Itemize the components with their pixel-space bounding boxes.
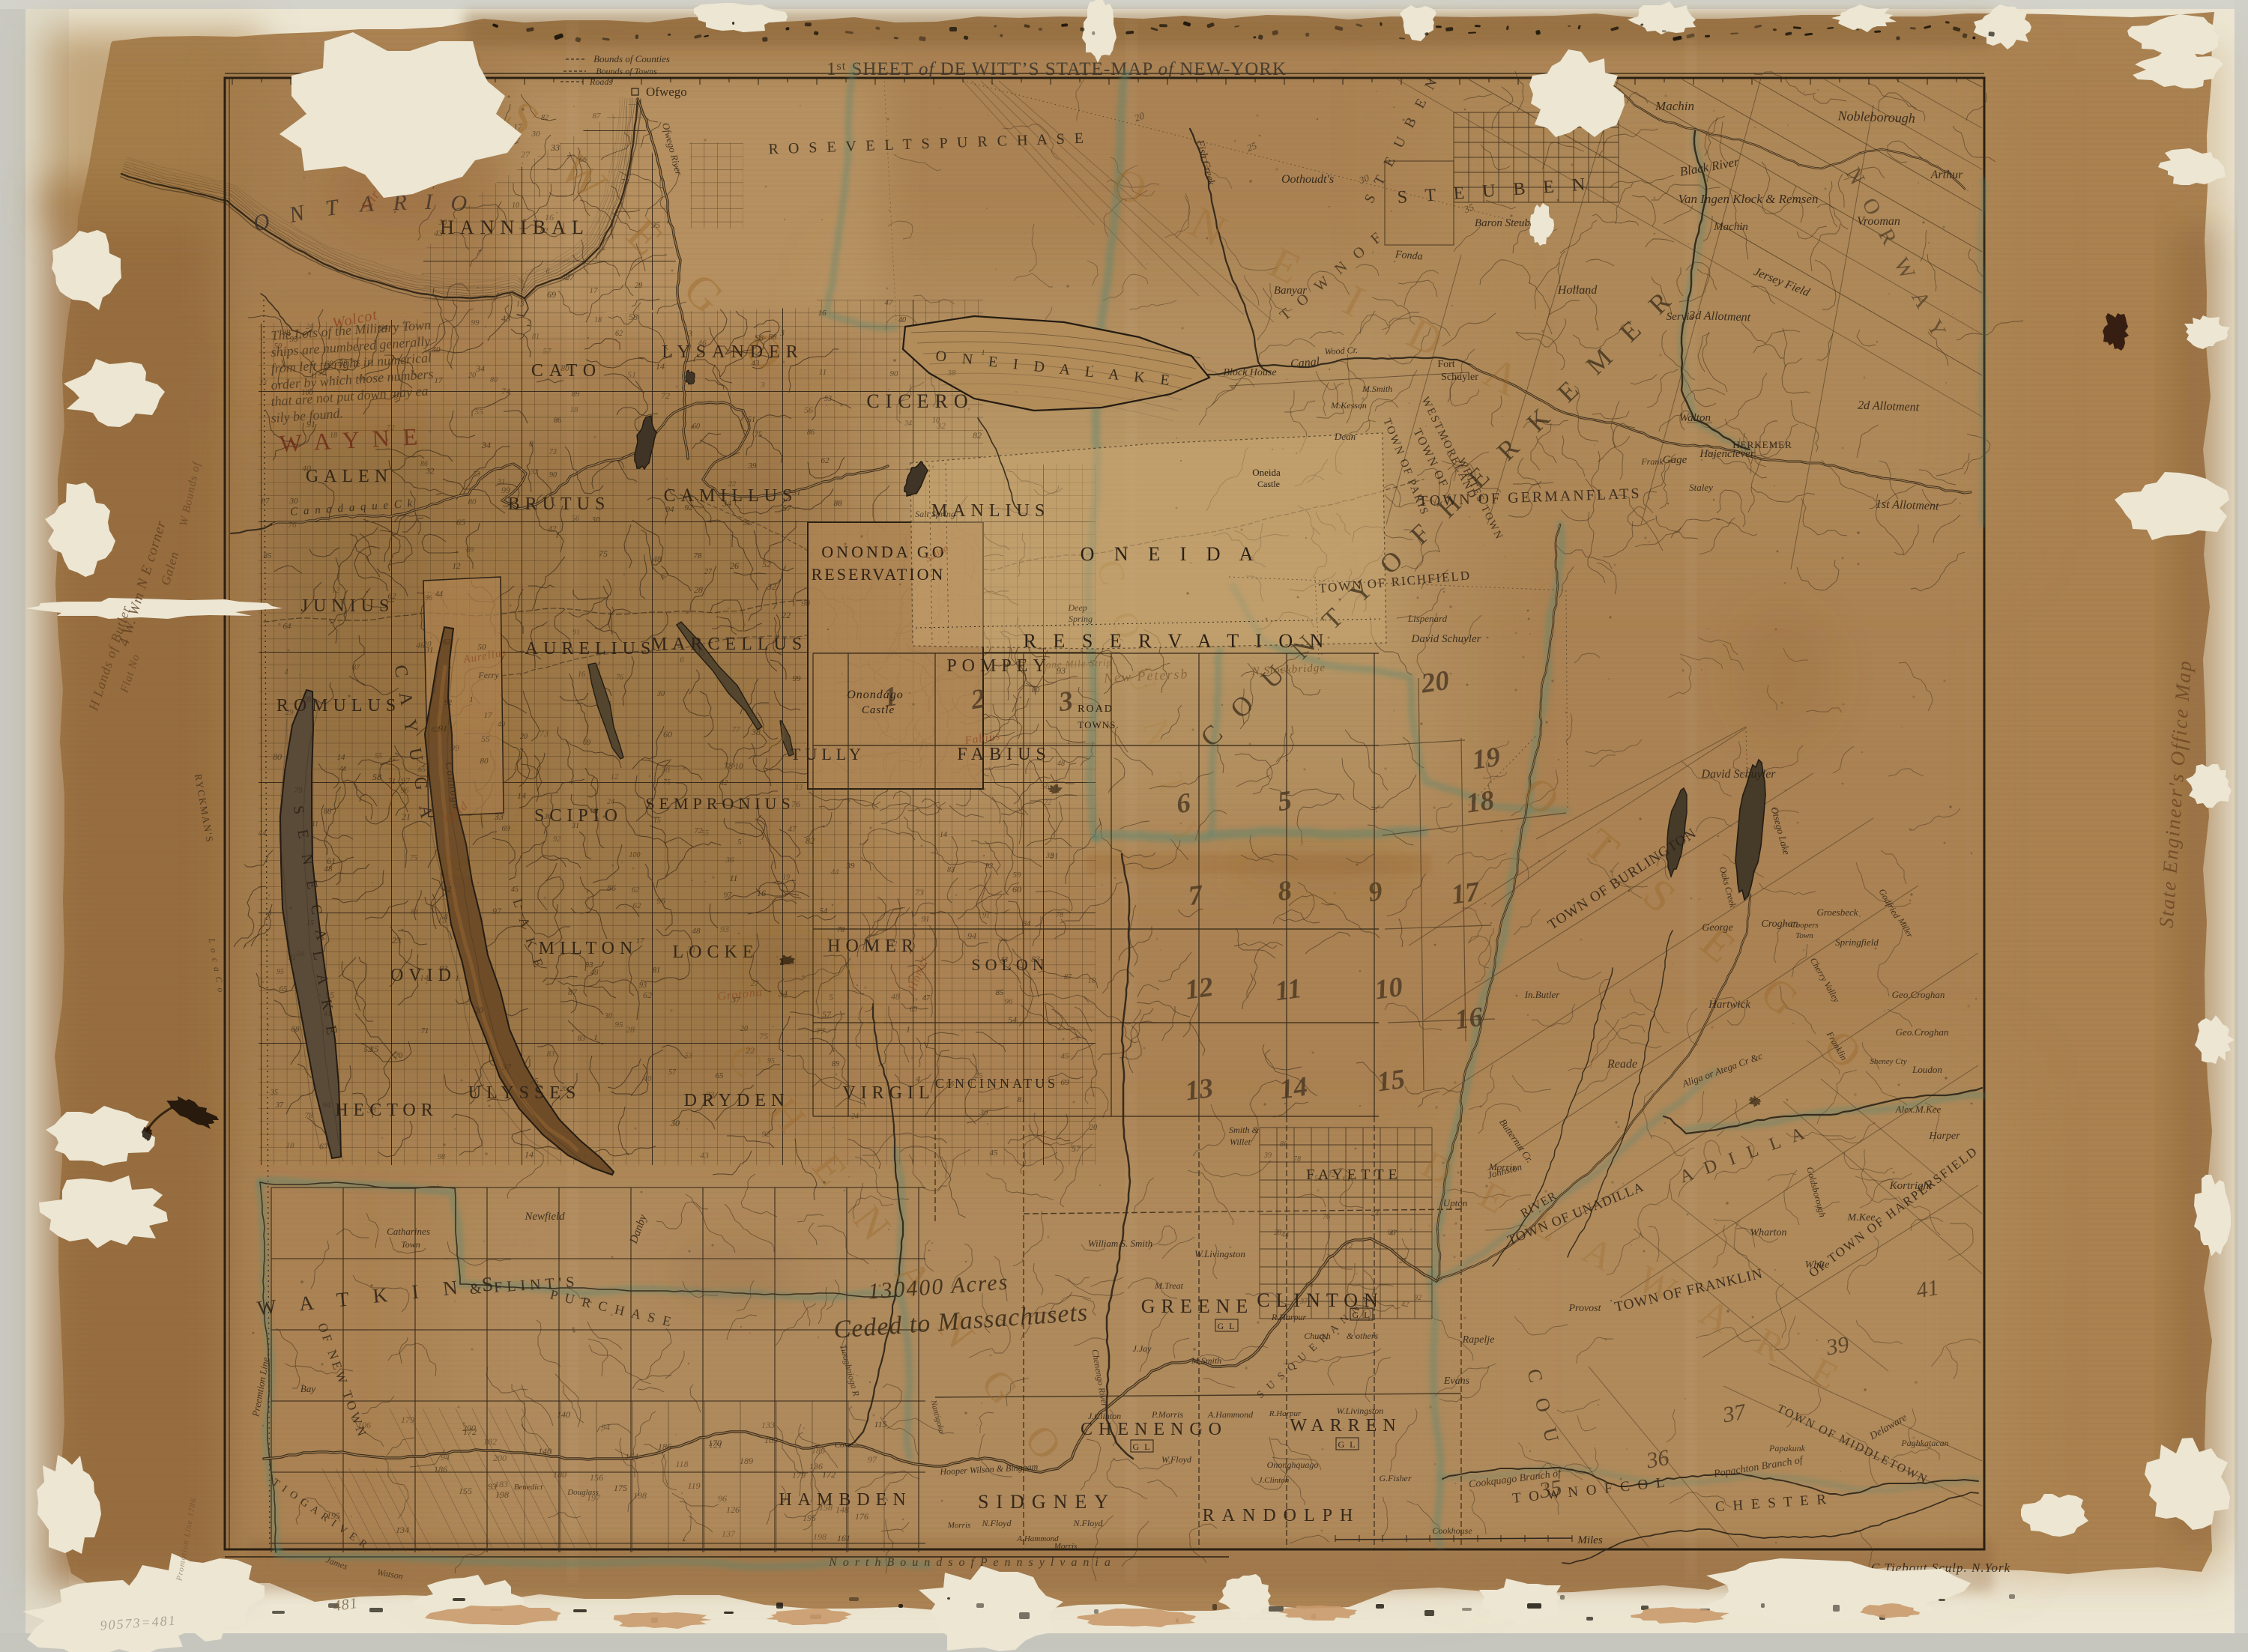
svg-text:N.Floyd: N.Floyd <box>982 1518 1012 1528</box>
svg-text:G L: G L <box>1133 1441 1152 1452</box>
svg-text:25: 25 <box>531 1077 540 1086</box>
svg-text:Servis: Servis <box>1667 311 1694 323</box>
svg-text:97: 97 <box>492 906 502 916</box>
svg-text:182: 182 <box>483 1436 497 1447</box>
svg-text:2d Allotment: 2d Allotment <box>1858 399 1920 414</box>
svg-text:47: 47 <box>885 298 894 307</box>
svg-text:Hartwick: Hartwick <box>1708 999 1750 1011</box>
svg-text:121: 121 <box>709 1440 722 1450</box>
svg-text:44: 44 <box>259 829 268 838</box>
svg-text:Dean: Dean <box>1334 431 1356 442</box>
svg-text:A.Hammond: A.Hammond <box>1207 1409 1254 1420</box>
svg-text:21: 21 <box>288 954 296 962</box>
svg-text:95: 95 <box>651 220 660 230</box>
svg-text:W.Livingston: W.Livingston <box>1337 1406 1384 1416</box>
svg-text:54: 54 <box>1008 1014 1017 1025</box>
svg-text:86: 86 <box>607 883 616 893</box>
svg-text:34: 34 <box>481 440 491 450</box>
svg-text:14: 14 <box>940 831 947 839</box>
svg-text:20: 20 <box>520 733 528 741</box>
svg-text:83: 83 <box>547 1050 555 1059</box>
svg-text:93: 93 <box>707 1090 716 1099</box>
svg-text:Castle: Castle <box>1257 479 1280 489</box>
svg-text:M.Treat: M.Treat <box>1154 1280 1184 1291</box>
svg-text:48: 48 <box>891 991 900 1002</box>
svg-text:189: 189 <box>740 1456 753 1466</box>
svg-text:72: 72 <box>1328 1171 1335 1179</box>
svg-text:45: 45 <box>696 647 705 658</box>
svg-text:23: 23 <box>392 935 401 945</box>
svg-text:30: 30 <box>656 690 665 698</box>
svg-text:William S. Smith: William S. Smith <box>1088 1238 1152 1249</box>
svg-text:16: 16 <box>818 309 827 318</box>
svg-text:35: 35 <box>369 1044 378 1054</box>
svg-text:18: 18 <box>1464 785 1496 820</box>
svg-text:40: 40 <box>898 316 906 324</box>
svg-text:50: 50 <box>274 342 282 351</box>
svg-text:27: 27 <box>521 149 531 160</box>
svg-text:SIDGNEY: SIDGNEY <box>978 1491 1116 1513</box>
svg-text:CICERO: CICERO <box>866 390 973 412</box>
svg-text:88: 88 <box>769 333 778 342</box>
svg-text:97: 97 <box>868 1454 877 1465</box>
svg-text:46: 46 <box>698 339 707 348</box>
svg-text:24: 24 <box>1371 1210 1379 1218</box>
svg-text:55: 55 <box>701 829 709 838</box>
svg-text:115: 115 <box>874 1419 886 1429</box>
svg-text:Newfield: Newfield <box>524 1211 565 1223</box>
svg-text:73: 73 <box>915 887 924 898</box>
svg-text:13: 13 <box>795 784 803 792</box>
svg-text:1: 1 <box>981 348 985 357</box>
svg-text:18: 18 <box>330 432 337 440</box>
svg-text:54: 54 <box>820 907 829 916</box>
svg-text:19: 19 <box>1470 742 1502 776</box>
svg-text:87: 87 <box>568 987 578 997</box>
svg-text:65: 65 <box>716 1071 725 1080</box>
svg-text:20: 20 <box>1090 1124 1097 1132</box>
svg-text:23: 23 <box>259 379 267 387</box>
svg-text:198: 198 <box>633 1490 647 1501</box>
svg-text:20: 20 <box>423 640 432 649</box>
svg-text:95: 95 <box>767 1057 775 1065</box>
svg-text:80: 80 <box>561 364 570 373</box>
svg-text:12: 12 <box>1183 972 1215 1006</box>
svg-text:41: 41 <box>339 765 347 773</box>
svg-text:87: 87 <box>262 497 271 506</box>
svg-text:3: 3 <box>687 328 692 339</box>
svg-text:Rapelje: Rapelje <box>1462 1334 1495 1346</box>
svg-text:30: 30 <box>531 130 541 139</box>
svg-text:83: 83 <box>411 908 418 916</box>
svg-text:G L: G L <box>1338 1439 1357 1450</box>
svg-text:Canal: Canal <box>1290 355 1320 370</box>
svg-text:62: 62 <box>615 330 623 338</box>
svg-text:57: 57 <box>543 347 552 356</box>
svg-text:AURELIUS: AURELIUS <box>525 639 656 659</box>
svg-text:4: 4 <box>916 1074 920 1084</box>
svg-text:82: 82 <box>806 835 815 846</box>
svg-text:Provost: Provost <box>1568 1303 1601 1314</box>
svg-text:97: 97 <box>724 891 733 900</box>
svg-text:126: 126 <box>726 1504 740 1515</box>
svg-text:1st SHEET of DE WITT’S STATE-M: 1st SHEET of DE WITT’S STATE-MAP of NEW-… <box>827 59 1287 79</box>
svg-text:156: 156 <box>590 1472 603 1483</box>
svg-text:140: 140 <box>557 1409 570 1420</box>
svg-text:134: 134 <box>396 1525 409 1535</box>
svg-text:81: 81 <box>532 333 540 341</box>
svg-text:32: 32 <box>1045 852 1054 860</box>
svg-text:61: 61 <box>1343 1175 1350 1183</box>
svg-text:W.Livingston: W.Livingston <box>1194 1248 1245 1259</box>
svg-text:Oothoudt's: Oothoudt's <box>1281 173 1334 186</box>
svg-text:55: 55 <box>325 990 334 1000</box>
svg-text:83: 83 <box>1031 954 1040 964</box>
svg-text:98: 98 <box>339 359 348 368</box>
svg-text:M.Kesson: M.Kesson <box>1330 400 1367 411</box>
svg-text:16: 16 <box>545 212 554 223</box>
svg-text:22: 22 <box>728 480 736 488</box>
svg-text:481: 481 <box>332 1595 359 1615</box>
svg-text:36: 36 <box>543 813 552 821</box>
svg-text:56: 56 <box>297 949 306 958</box>
svg-text:Morris: Morris <box>1488 1161 1516 1173</box>
svg-text:43: 43 <box>752 359 761 368</box>
svg-text:38: 38 <box>751 727 761 737</box>
svg-text:N.Floyd: N.Floyd <box>1073 1518 1104 1528</box>
svg-text:161: 161 <box>837 1533 850 1543</box>
svg-text:Nobleborough: Nobleborough <box>1837 108 1915 126</box>
svg-text:51: 51 <box>627 369 636 380</box>
svg-text:91: 91 <box>922 915 930 924</box>
svg-text:35: 35 <box>270 1089 278 1097</box>
svg-text:50: 50 <box>478 643 487 652</box>
svg-text:14: 14 <box>656 361 665 372</box>
svg-text:31: 31 <box>792 488 801 497</box>
svg-text:109: 109 <box>764 1435 778 1445</box>
svg-text:Reade: Reade <box>1607 1058 1637 1071</box>
svg-text:65: 65 <box>280 984 288 993</box>
svg-text:62: 62 <box>821 456 830 465</box>
svg-text:30: 30 <box>670 1118 680 1128</box>
svg-text:14: 14 <box>337 753 346 762</box>
svg-text:62: 62 <box>388 592 397 601</box>
svg-text:21: 21 <box>402 811 411 822</box>
svg-text:93: 93 <box>1057 665 1066 676</box>
svg-text:48: 48 <box>324 865 333 874</box>
svg-text:179: 179 <box>401 1415 414 1425</box>
svg-text:73: 73 <box>540 728 549 739</box>
svg-text:45: 45 <box>1061 1052 1070 1061</box>
svg-text:80: 80 <box>273 751 282 762</box>
svg-text:95: 95 <box>277 968 284 976</box>
svg-text:Deep: Deep <box>1067 602 1087 613</box>
svg-text:95: 95 <box>290 335 299 344</box>
svg-text:David Schuyler: David Schuyler <box>1700 768 1776 781</box>
svg-text:one Mile Strip: one Mile Strip <box>1045 656 1112 670</box>
svg-text:87: 87 <box>1064 973 1072 981</box>
svg-text:66: 66 <box>1388 1229 1395 1237</box>
svg-text:A.Hammond: A.Hammond <box>1016 1534 1059 1543</box>
svg-text:45: 45 <box>511 886 519 894</box>
svg-text:LYSANDER: LYSANDER <box>662 342 804 362</box>
svg-text:10: 10 <box>512 202 519 210</box>
svg-text:45: 45 <box>990 1149 999 1158</box>
svg-text:5: 5 <box>738 838 742 847</box>
svg-text:Wood Cr.: Wood Cr. <box>1324 345 1358 357</box>
svg-text:Harper: Harper <box>1928 1131 1960 1142</box>
svg-text:J.Clinton: J.Clinton <box>1259 1476 1290 1485</box>
svg-text:J.Clinton: J.Clinton <box>1088 1411 1121 1421</box>
svg-text:96: 96 <box>1005 997 1014 1006</box>
svg-text:25: 25 <box>318 367 327 378</box>
svg-text:97: 97 <box>401 775 411 786</box>
svg-text:Bounds of Counties: Bounds of Counties <box>593 53 670 64</box>
svg-text:12: 12 <box>611 773 618 781</box>
svg-text:69: 69 <box>466 546 474 554</box>
svg-text:6: 6 <box>546 267 550 276</box>
svg-text:FABIUS: FABIUS <box>957 745 1051 764</box>
svg-text:30: 30 <box>591 515 601 524</box>
svg-text:Banyar: Banyar <box>1274 285 1307 297</box>
svg-text:ROAD: ROAD <box>1078 704 1114 715</box>
svg-text:69: 69 <box>583 739 590 747</box>
svg-text:16: 16 <box>757 888 766 898</box>
svg-text:41: 41 <box>324 1010 331 1018</box>
svg-text:88: 88 <box>324 808 331 816</box>
svg-text:75: 75 <box>755 431 762 439</box>
svg-text:60: 60 <box>663 729 672 739</box>
svg-text:39: 39 <box>1263 1152 1272 1160</box>
svg-text:92: 92 <box>1414 1294 1421 1302</box>
svg-text:R.Harpur: R.Harpur <box>1271 1312 1307 1322</box>
svg-text:53: 53 <box>824 395 832 403</box>
svg-text:RANDOLPH: RANDOLPH <box>1203 1506 1361 1525</box>
svg-text:90: 90 <box>549 471 557 479</box>
svg-text:99: 99 <box>501 485 510 495</box>
svg-text:17: 17 <box>1449 877 1482 911</box>
svg-text:93: 93 <box>639 981 647 990</box>
svg-text:14: 14 <box>517 790 526 801</box>
svg-text:80: 80 <box>468 497 477 506</box>
svg-text:89: 89 <box>832 1060 839 1068</box>
svg-text:65: 65 <box>456 517 465 527</box>
svg-text:42: 42 <box>444 885 453 894</box>
svg-text:Geo.Croghan: Geo.Croghan <box>1892 989 1945 1000</box>
svg-text:TULLY: TULLY <box>791 745 865 763</box>
svg-text:11: 11 <box>310 372 317 381</box>
svg-text:43: 43 <box>700 1150 709 1161</box>
svg-text:15: 15 <box>653 817 661 825</box>
svg-text:5: 5 <box>431 685 435 695</box>
svg-text:32: 32 <box>936 420 946 431</box>
svg-text:51: 51 <box>748 416 755 424</box>
svg-text:3: 3 <box>779 327 785 338</box>
svg-text:106: 106 <box>357 1420 371 1430</box>
svg-text:1: 1 <box>455 974 459 983</box>
svg-text:42: 42 <box>549 524 558 533</box>
svg-text:55: 55 <box>375 752 382 760</box>
svg-text:13: 13 <box>516 300 525 309</box>
svg-text:30: 30 <box>289 497 299 506</box>
svg-text:57: 57 <box>1072 1143 1081 1154</box>
svg-text:89: 89 <box>572 390 579 399</box>
svg-text:96: 96 <box>425 594 432 602</box>
svg-text:Church: Church <box>1304 1331 1331 1341</box>
svg-text:Smith &: Smith & <box>1229 1125 1259 1135</box>
svg-text:100: 100 <box>302 389 313 397</box>
svg-text:33: 33 <box>366 1104 376 1115</box>
svg-text:R.Harpur: R.Harpur <box>1269 1409 1302 1418</box>
svg-text:P.Morris: P.Morris <box>1151 1409 1183 1420</box>
svg-text:R E S E R V A T I O N: R E S E R V A T I O N <box>1024 630 1330 652</box>
svg-text:JUNIUS: JUNIUS <box>301 596 395 616</box>
svg-text:22: 22 <box>746 1045 755 1056</box>
svg-text:40: 40 <box>302 463 311 473</box>
svg-text:41: 41 <box>311 820 318 829</box>
svg-text:TOWNS.: TOWNS. <box>1078 719 1119 730</box>
svg-text:54: 54 <box>1314 1175 1322 1183</box>
svg-text:42: 42 <box>720 779 728 787</box>
svg-text:8: 8 <box>529 438 534 449</box>
svg-text:68: 68 <box>291 1025 300 1034</box>
svg-text:93: 93 <box>440 964 449 973</box>
svg-text:78: 78 <box>724 760 733 771</box>
svg-text:81: 81 <box>653 966 660 975</box>
svg-text:96: 96 <box>401 786 410 795</box>
svg-text:18: 18 <box>594 316 602 324</box>
svg-text:30: 30 <box>604 1012 612 1020</box>
svg-text:73: 73 <box>473 471 480 479</box>
svg-text:75: 75 <box>663 778 671 787</box>
svg-text:ROMULUS: ROMULUS <box>277 696 401 715</box>
svg-text:W.Floyd: W.Floyd <box>1161 1454 1192 1465</box>
svg-text:20: 20 <box>468 372 476 380</box>
svg-text:28: 28 <box>694 584 703 595</box>
svg-text:Geo.Croghan: Geo.Croghan <box>1896 1026 1949 1038</box>
svg-text:28: 28 <box>626 1024 635 1035</box>
svg-text:39: 39 <box>846 862 856 871</box>
svg-text:66: 66 <box>946 1080 954 1089</box>
svg-text:22: 22 <box>782 610 791 620</box>
svg-text:LOCKE: LOCKE <box>673 943 759 962</box>
svg-text:15: 15 <box>1375 1064 1406 1098</box>
svg-text:69: 69 <box>910 1005 917 1014</box>
svg-text:Ononghquago: Ononghquago <box>1267 1459 1319 1470</box>
svg-text:Frank: Frank <box>1640 456 1664 467</box>
svg-text:40: 40 <box>644 1074 653 1083</box>
svg-text:Sheney Cty: Sheney Cty <box>1870 1057 1906 1066</box>
svg-text:118: 118 <box>675 1459 688 1469</box>
svg-text:Cookhouse: Cookhouse <box>1432 1525 1472 1536</box>
svg-text:17: 17 <box>590 286 599 295</box>
svg-text:82: 82 <box>540 227 548 235</box>
svg-text:Lispenard: Lispenard <box>1407 613 1448 624</box>
svg-text:11: 11 <box>1273 973 1303 1007</box>
svg-text:62: 62 <box>633 901 642 910</box>
svg-text:17: 17 <box>636 937 645 945</box>
svg-text:43: 43 <box>1000 956 1008 964</box>
svg-text:197: 197 <box>587 1492 601 1503</box>
svg-text:In.Butler: In.Butler <box>1524 989 1561 1000</box>
svg-text:20: 20 <box>1418 665 1451 700</box>
svg-text:11: 11 <box>729 873 737 883</box>
svg-text:4: 4 <box>285 668 288 677</box>
svg-text:32: 32 <box>767 581 776 592</box>
svg-text:91: 91 <box>306 419 315 429</box>
svg-text:31: 31 <box>686 944 696 954</box>
svg-text:186: 186 <box>434 1464 447 1474</box>
svg-text:93: 93 <box>488 1481 497 1492</box>
svg-text:RESERVATION: RESERVATION <box>812 565 946 584</box>
svg-text:73: 73 <box>549 448 557 456</box>
svg-text:180: 180 <box>553 1469 566 1480</box>
svg-text:40: 40 <box>432 345 441 354</box>
svg-text:Staley: Staley <box>1689 482 1713 493</box>
svg-text:78: 78 <box>305 1111 314 1120</box>
svg-text:33: 33 <box>550 142 560 153</box>
svg-text:48: 48 <box>653 554 662 564</box>
svg-text:HANNIBAL: HANNIBAL <box>440 217 590 238</box>
svg-text:56: 56 <box>572 515 579 523</box>
svg-text:44: 44 <box>435 590 443 599</box>
svg-text:24: 24 <box>607 798 614 806</box>
svg-text:55: 55 <box>475 408 484 417</box>
svg-text:16: 16 <box>578 671 585 679</box>
svg-text:78: 78 <box>694 551 703 560</box>
svg-text:83: 83 <box>947 866 955 874</box>
svg-text:Wharton: Wharton <box>1750 1227 1787 1238</box>
svg-text:43: 43 <box>434 228 443 238</box>
svg-text:56: 56 <box>1042 782 1051 791</box>
svg-text:69: 69 <box>547 289 556 300</box>
svg-text:G L: G L <box>1218 1321 1236 1331</box>
svg-text:18: 18 <box>570 405 579 414</box>
svg-text:48: 48 <box>692 927 701 936</box>
svg-text:Oneida: Oneida <box>1252 467 1281 478</box>
svg-text:14: 14 <box>525 1149 534 1160</box>
svg-text:71: 71 <box>388 778 396 786</box>
svg-text:25: 25 <box>975 1071 984 1080</box>
svg-text:94: 94 <box>601 1422 610 1432</box>
svg-text:14: 14 <box>420 972 429 983</box>
svg-text:72: 72 <box>661 390 670 401</box>
svg-text:GALEN: GALEN <box>306 467 393 486</box>
svg-text:2: 2 <box>527 318 531 328</box>
svg-text:92: 92 <box>553 835 561 844</box>
svg-text:Groesbeck: Groesbeck <box>1816 907 1858 918</box>
svg-text:27: 27 <box>704 568 713 576</box>
svg-text:Loudon: Loudon <box>1912 1064 1942 1075</box>
svg-text:N o r t h B o u n d s o f: N o r t h B o u n d s o f P e n n s y l … <box>828 1556 1112 1569</box>
svg-text:Castle: Castle <box>862 704 895 716</box>
svg-text:6: 6 <box>680 656 684 665</box>
svg-text:Paghkatacan: Paghkatacan <box>1900 1438 1948 1448</box>
svg-text:74: 74 <box>501 386 510 396</box>
svg-text:53: 53 <box>685 1052 692 1060</box>
svg-text:Van Ingen Klock & Remsen: Van Ingen Klock & Remsen <box>1679 192 1819 206</box>
svg-text:137: 137 <box>722 1528 736 1539</box>
svg-text:Holland: Holland <box>1557 284 1598 297</box>
svg-text:3d Allotment: 3d Allotment <box>1688 309 1751 324</box>
svg-text:72: 72 <box>621 178 630 187</box>
svg-text:56: 56 <box>804 405 813 415</box>
svg-text:DRYDEN: DRYDEN <box>684 1091 790 1110</box>
svg-text:94: 94 <box>323 1101 332 1110</box>
svg-text:96: 96 <box>718 1493 727 1504</box>
svg-text:99: 99 <box>793 674 802 683</box>
svg-text:1: 1 <box>470 696 474 704</box>
